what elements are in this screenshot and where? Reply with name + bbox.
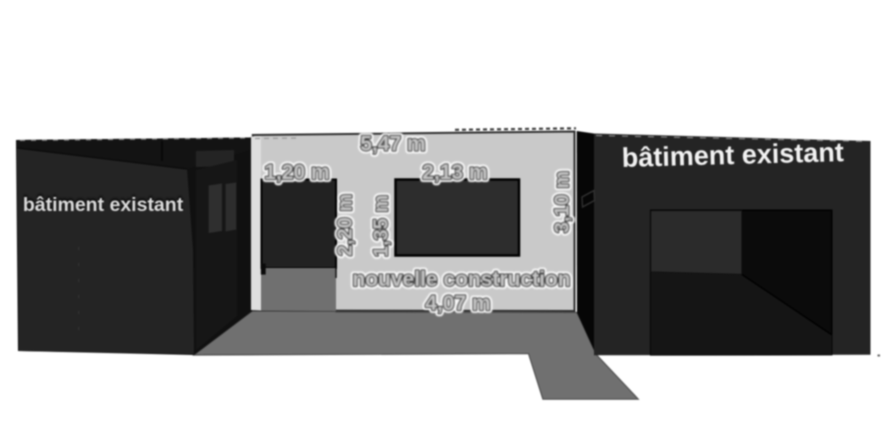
svg-text:2,13 m: 2,13 m <box>422 161 487 184</box>
svg-text:5,47 m: 5,47 m <box>360 133 425 156</box>
svg-text:2,20 m: 2,20 m <box>335 194 357 256</box>
svg-text:1,35 m: 1,35 m <box>371 195 393 257</box>
svg-text:bâtiment existant: bâtiment existant <box>621 137 844 173</box>
svg-text:4,07 m: 4,07 m <box>425 292 490 315</box>
svg-text:nouvelle construction: nouvelle construction <box>352 268 570 291</box>
svg-text:1,20 m: 1,20 m <box>264 161 329 184</box>
svg-text:3,10 m: 3,10 m <box>552 171 574 233</box>
svg-text:bâtiment existant: bâtiment existant <box>23 194 184 216</box>
